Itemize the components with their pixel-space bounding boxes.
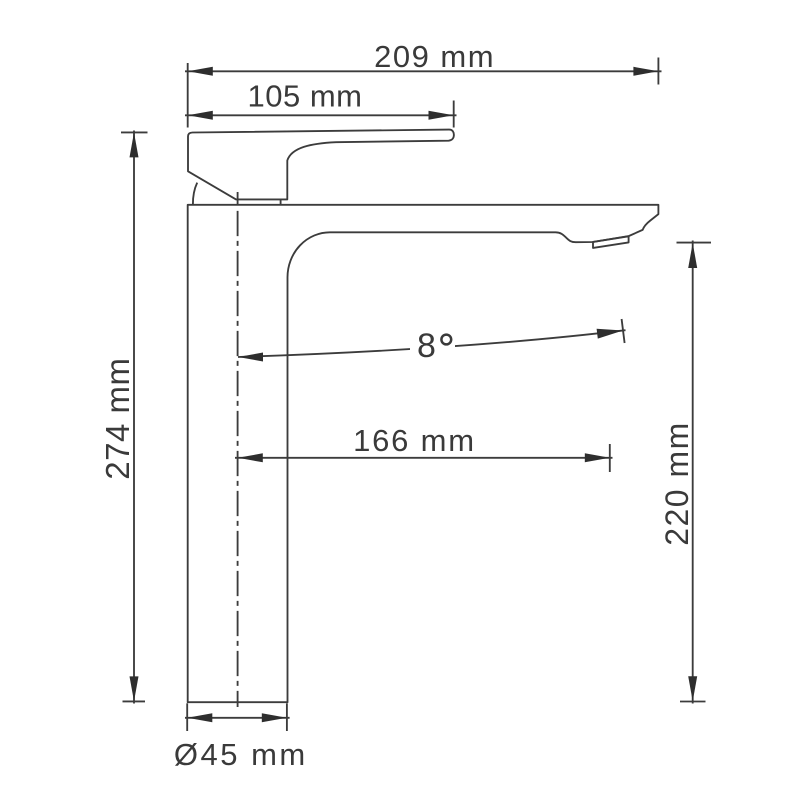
svg-text:105 mm: 105 mm bbox=[248, 79, 363, 114]
svg-text:209 mm: 209 mm bbox=[374, 39, 495, 74]
svg-text:8: 8 bbox=[417, 327, 436, 365]
svg-text:220 mm: 220 mm bbox=[659, 421, 695, 546]
svg-text:274 mm: 274 mm bbox=[99, 357, 136, 479]
svg-text:Ø45 mm: Ø45 mm bbox=[174, 737, 308, 772]
svg-text:166 mm: 166 mm bbox=[353, 423, 476, 458]
